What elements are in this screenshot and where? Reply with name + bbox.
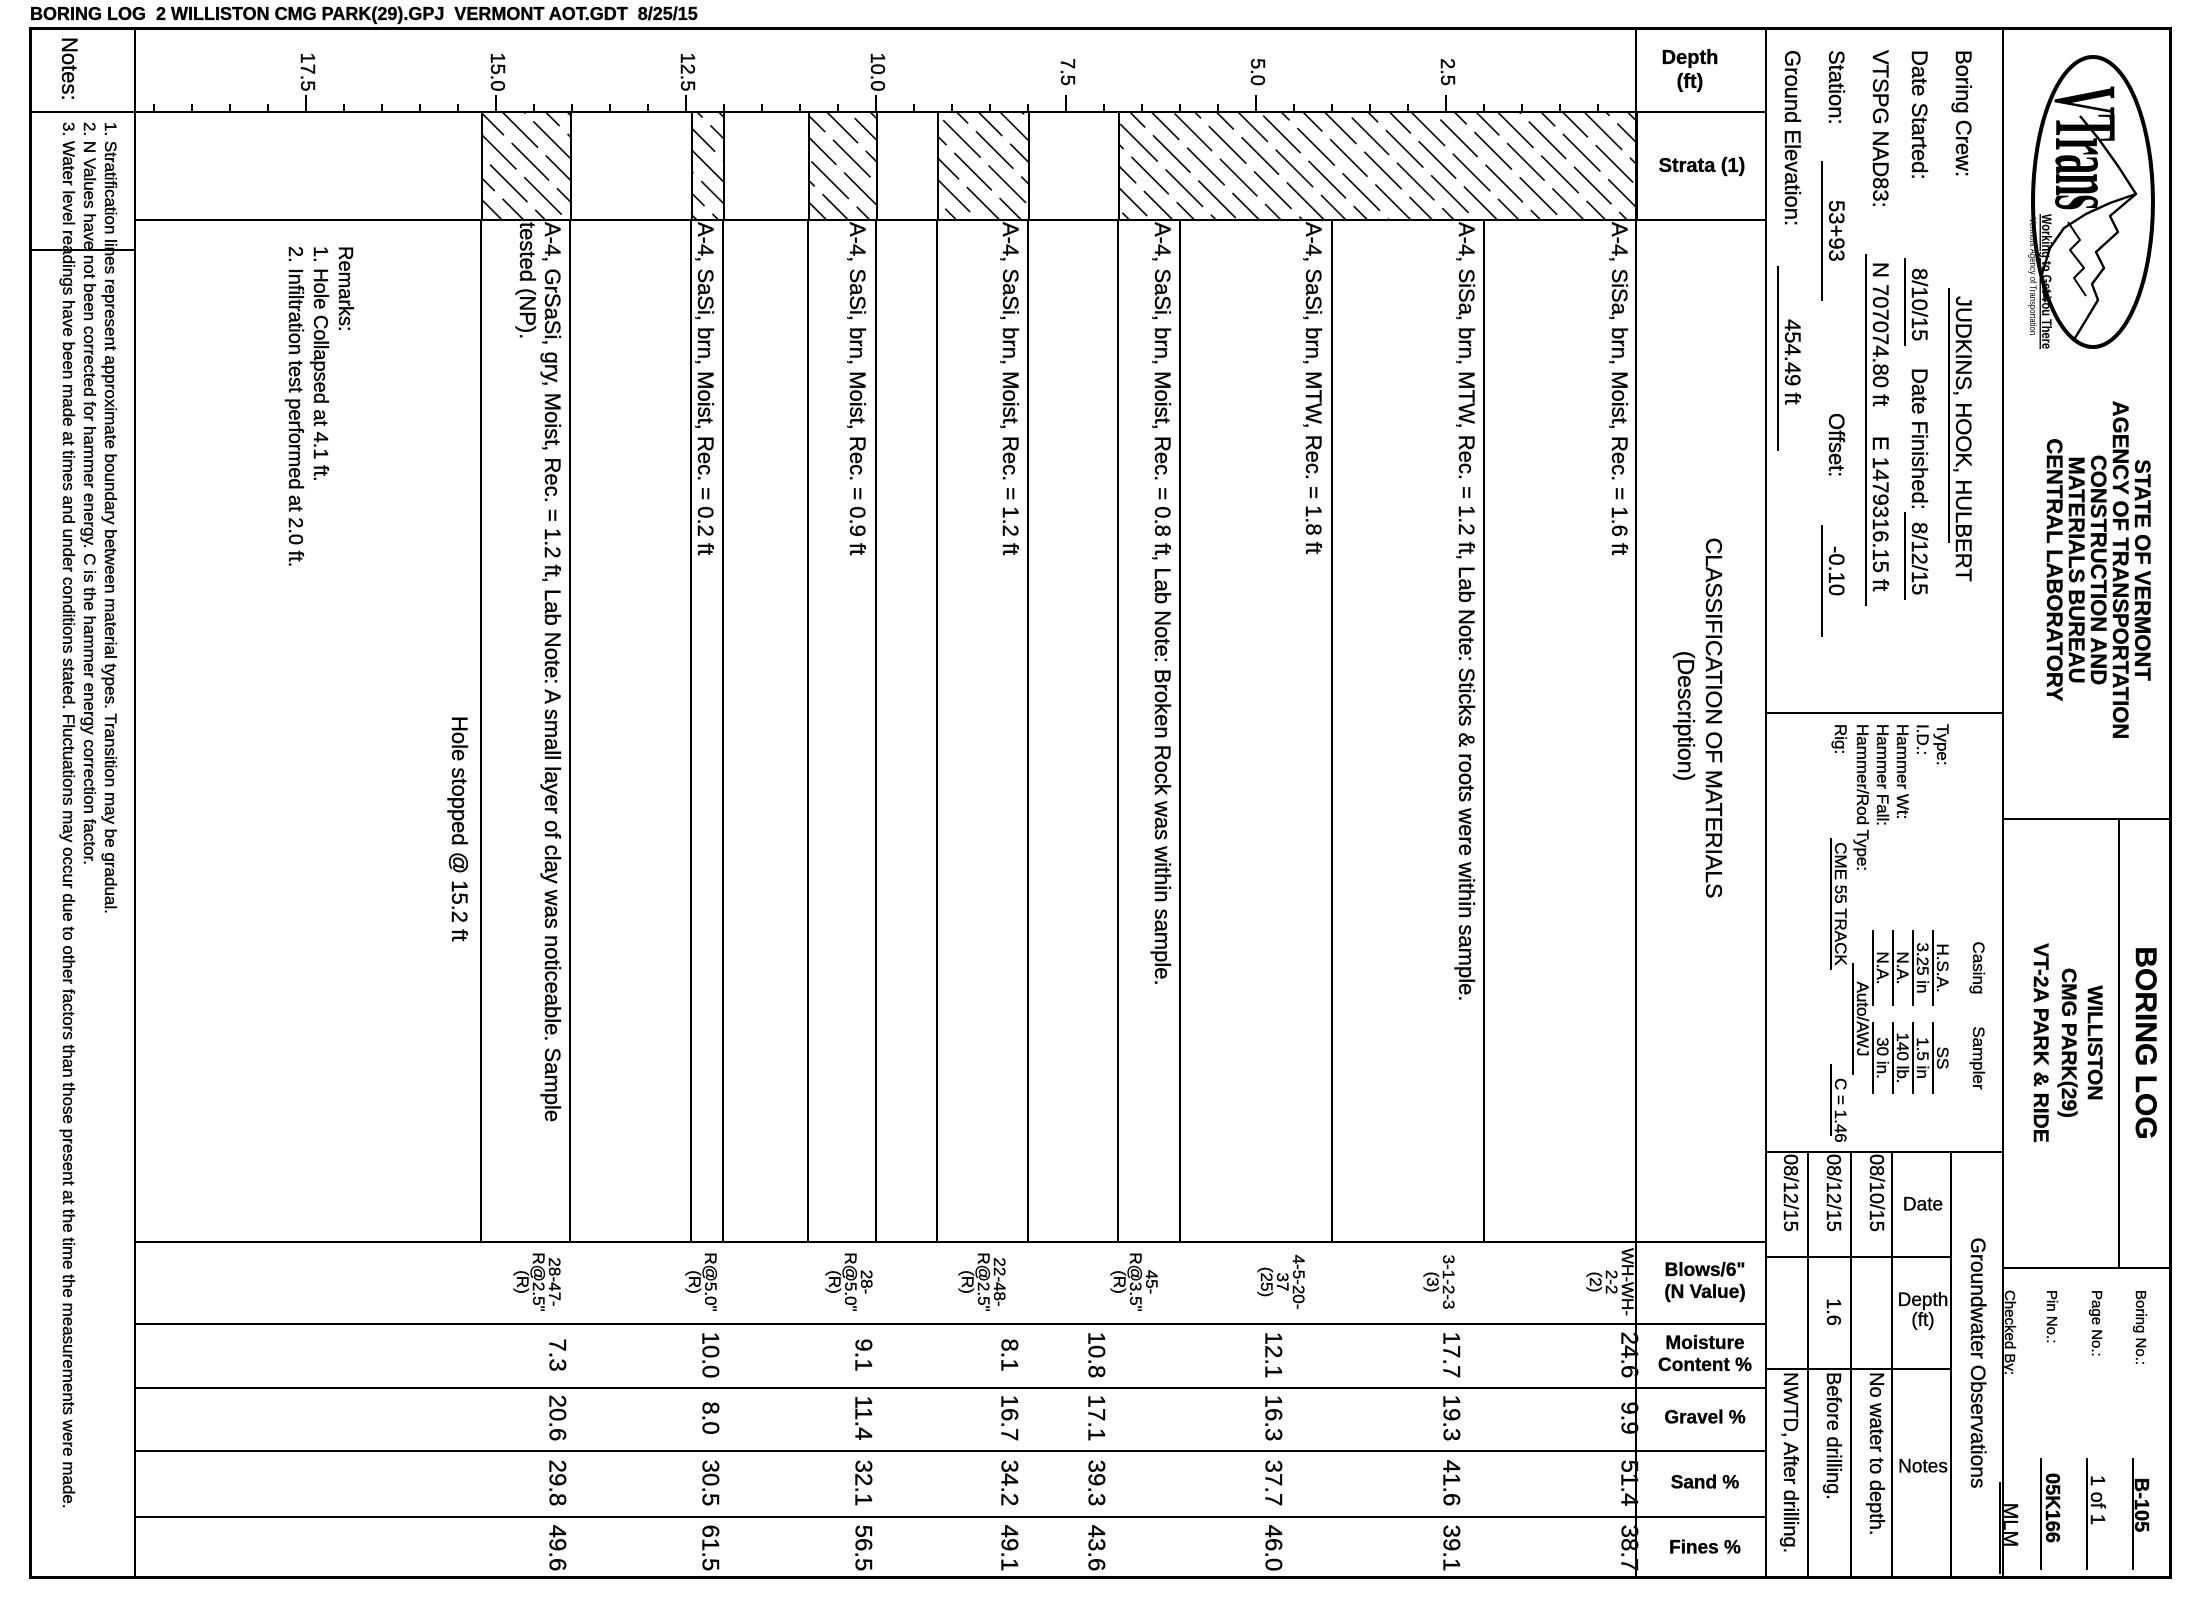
svg-text:Vermont Agency of Transportati: Vermont Agency of Transportation (2028, 218, 2039, 335)
svg-text:Working to Get You There: Working to Get You There (2039, 214, 2054, 349)
svg-text:VTrans: VTrans (2037, 86, 2136, 210)
